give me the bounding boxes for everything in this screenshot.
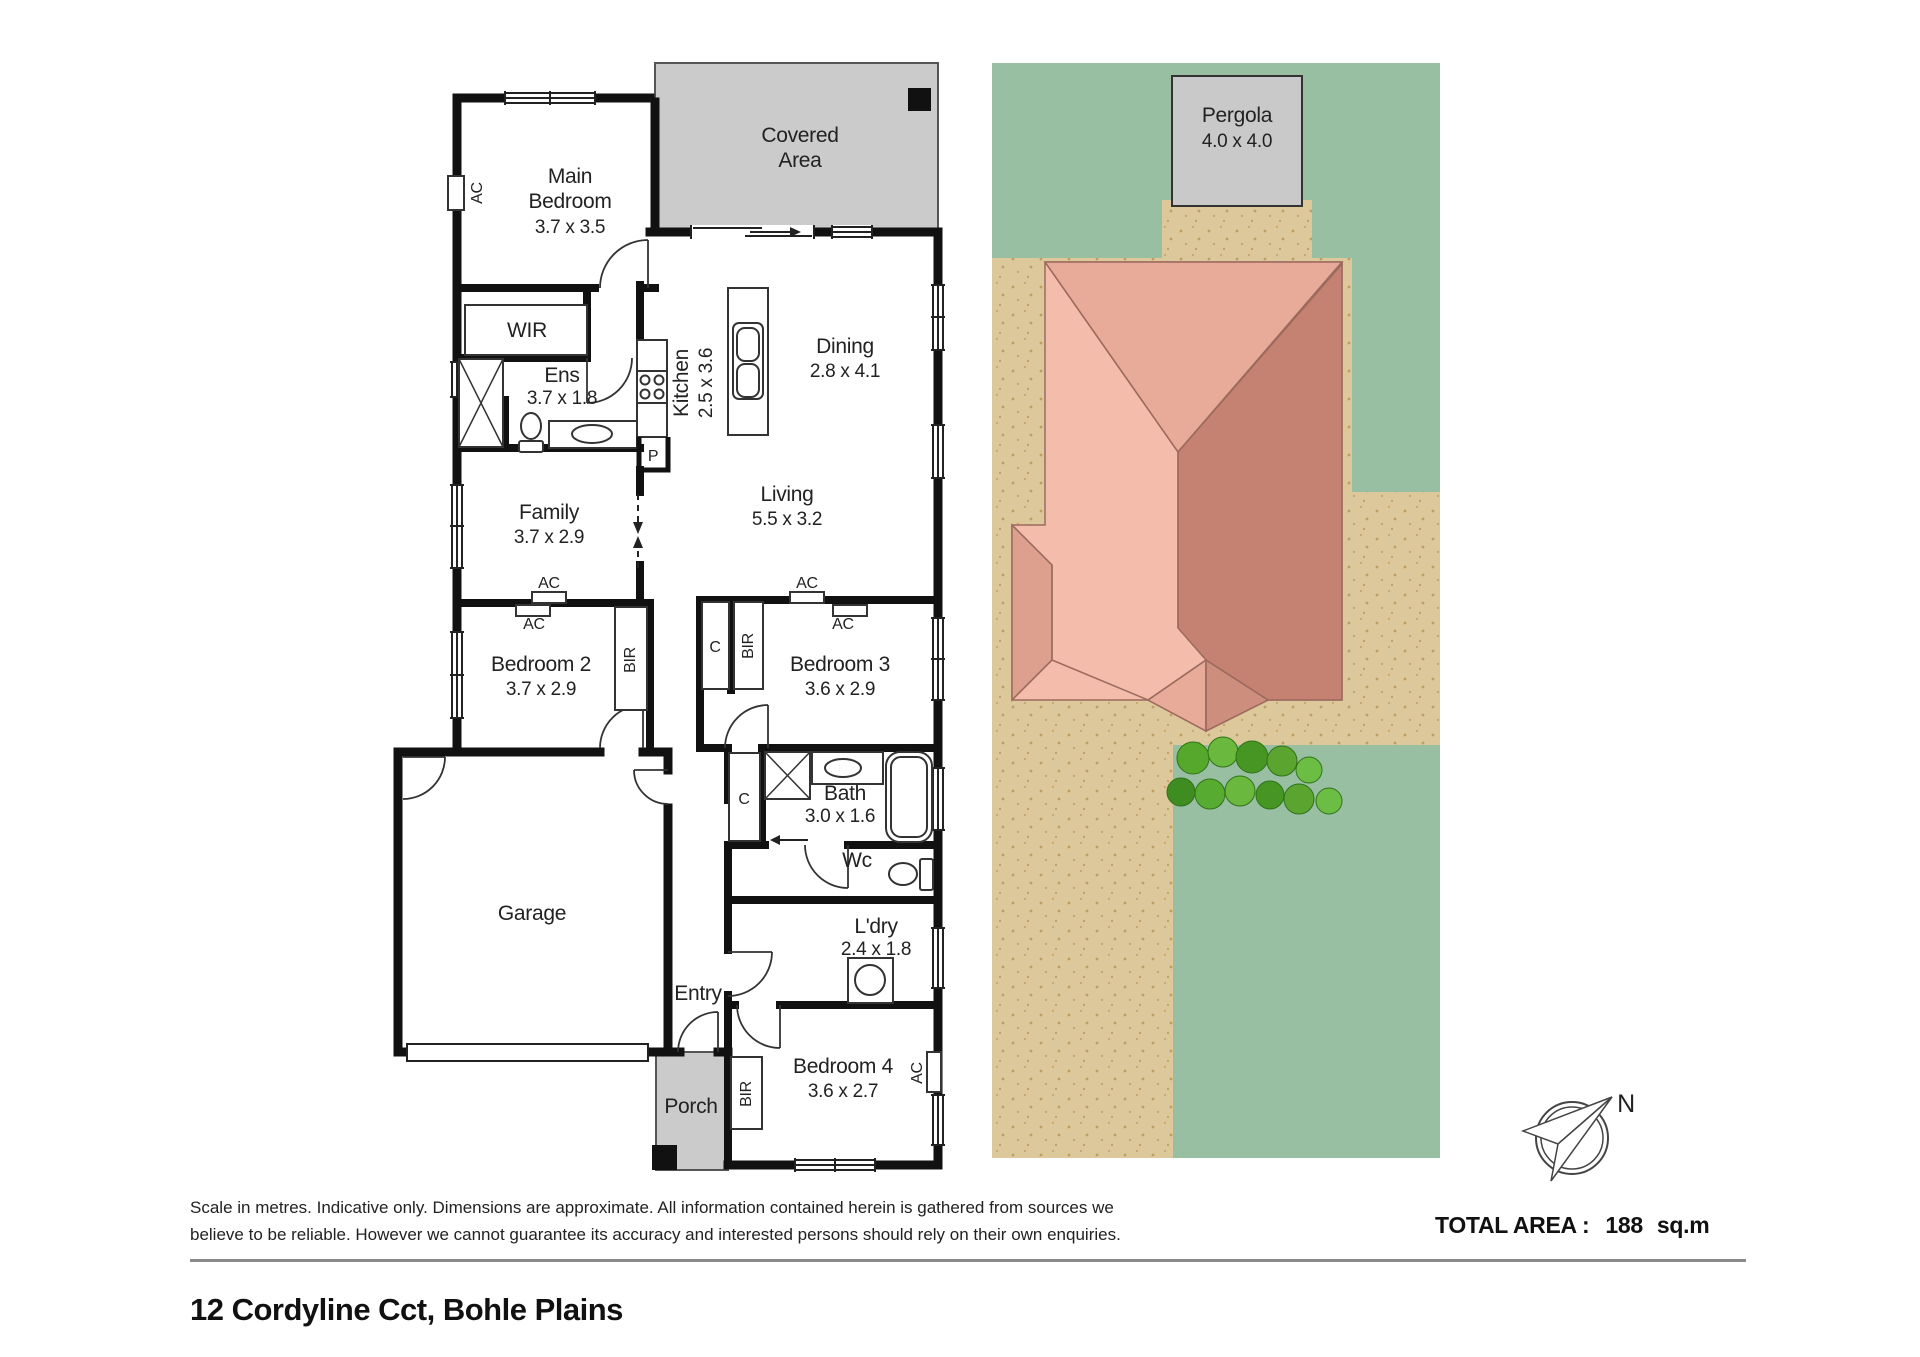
room-label-porch: Porch — [664, 1095, 717, 1118]
room-label-family: Family — [519, 501, 580, 524]
disclaimer-line2: believe to be reliable. However we canno… — [190, 1221, 1290, 1248]
room-label-main-bedroom-2: Bedroom — [528, 190, 611, 213]
covered-area-post — [908, 88, 931, 111]
total-area-value: 188 — [1605, 1212, 1642, 1238]
cupboard-label: C — [738, 791, 749, 808]
garage-door — [407, 1044, 648, 1061]
tree — [1296, 757, 1322, 783]
arrow-down — [633, 522, 643, 534]
ac-label: AC — [538, 575, 560, 592]
pantry-label: P — [648, 448, 658, 465]
laundry-tub — [848, 958, 893, 1003]
yard-right — [1352, 492, 1440, 745]
room-label-bedroom4: Bedroom 4 — [793, 1055, 894, 1078]
basin-bath — [825, 759, 861, 777]
toilet-tank-ensuite — [519, 441, 543, 452]
tree — [1236, 741, 1268, 773]
yard-bottom-left — [992, 745, 1173, 1158]
ac-label: AC — [469, 182, 486, 204]
floor-plan: Covered Area Main Bedroom 3.7 x 3.5 WIR … — [398, 63, 945, 1172]
bir-label: BIR — [738, 1081, 755, 1107]
room-dims-ens: 3.7 x 1.8 — [527, 388, 597, 409]
basin-ensuite — [572, 425, 612, 443]
door-entry-front — [678, 1012, 718, 1052]
tree — [1208, 737, 1238, 767]
ac-label: AC — [832, 616, 854, 633]
tree — [1256, 781, 1284, 809]
toilet-wc — [889, 863, 917, 885]
pergola-path — [1162, 200, 1312, 258]
window — [832, 225, 872, 239]
tree — [1195, 779, 1225, 809]
room-dims-laundry: 2.4 x 1.8 — [841, 939, 911, 960]
room-dims-bedroom3: 3.6 x 2.9 — [805, 679, 875, 700]
toilet-ensuite — [521, 413, 541, 439]
tree — [1167, 778, 1195, 806]
disclaimer: Scale in metres. Indicative only. Dimens… — [190, 1194, 1290, 1248]
room-dims-bedroom2: 3.7 x 2.9 — [506, 679, 576, 700]
window — [931, 425, 945, 478]
ac-unit-living — [790, 592, 824, 603]
sliding-door — [691, 225, 814, 239]
pergola: Pergola 4.0 x 4.0 — [1172, 76, 1302, 206]
room-dims-bath: 3.0 x 1.6 — [805, 806, 875, 827]
window — [795, 1158, 875, 1172]
room-label-covered-area-1: Covered — [761, 124, 838, 147]
ac-unit-family — [532, 592, 566, 603]
bathtub-inner — [891, 757, 927, 837]
island-sink — [733, 323, 763, 399]
ac-label: AC — [909, 1062, 926, 1084]
door-main-bedroom — [600, 240, 648, 288]
house-roof — [1012, 262, 1342, 731]
window — [931, 1095, 945, 1145]
toilet-tank-wc — [920, 859, 933, 890]
tree — [1225, 776, 1255, 806]
room-label-kitchen: Kitchen — [670, 349, 693, 417]
room-dims-dining: 2.8 x 4.1 — [810, 361, 880, 382]
pergola-dims: 4.0 x 4.0 — [1202, 131, 1272, 152]
ac-unit-bedroom4 — [927, 1052, 941, 1092]
room-dims-bedroom4: 3.6 x 2.7 — [808, 1081, 878, 1102]
room-label-bedroom2: Bedroom 2 — [491, 653, 591, 676]
door-garage-side — [403, 757, 445, 799]
total-area-unit: sq.m — [1657, 1212, 1709, 1238]
room-label-laundry: L'dry — [854, 915, 898, 938]
window — [931, 768, 945, 830]
footer-divider — [190, 1259, 1746, 1262]
ac-unit-bedroom3 — [833, 605, 867, 616]
arrow-up — [633, 536, 643, 548]
window — [931, 618, 945, 700]
total-area-label: TOTAL AREA : — [1435, 1212, 1589, 1238]
bir-label: BIR — [740, 633, 757, 659]
room-label-main-bedroom-1: Main — [548, 165, 592, 188]
tree — [1177, 742, 1209, 774]
room-label-bedroom3: Bedroom 3 — [790, 653, 890, 676]
total-area: TOTAL AREA :188sq.m — [1435, 1212, 1709, 1239]
window — [450, 485, 464, 568]
room-label-wc: Wc — [842, 849, 872, 872]
floorplan-page: Pergola 4.0 x 4.0 — [0, 0, 1920, 1357]
room-label-wir: WIR — [507, 319, 547, 342]
site-plan: Pergola 4.0 x 4.0 — [992, 63, 1440, 1158]
door-bedroom4 — [737, 1005, 780, 1048]
porch-post — [652, 1145, 677, 1170]
compass-north-label: N — [1617, 1090, 1635, 1118]
ac-unit-main-bedroom — [448, 176, 464, 210]
tree — [1267, 746, 1297, 776]
window — [450, 632, 464, 718]
room-label-bath: Bath — [824, 782, 866, 805]
property-address: 12 Cordyline Cct, Bohle Plains — [190, 1292, 623, 1328]
arrow-bath-exit — [770, 835, 780, 845]
cooktop — [637, 371, 667, 403]
room-dims-kitchen: 2.5 x 3.6 — [696, 348, 717, 418]
window — [505, 91, 595, 105]
windows — [407, 91, 945, 1172]
room-label-garage: Garage — [498, 902, 566, 925]
bir-label: BIR — [622, 647, 639, 673]
room-dims-family: 3.7 x 2.9 — [514, 527, 584, 548]
plan-graphic: Pergola 4.0 x 4.0 — [0, 0, 1920, 1357]
room-label-entry: Entry — [674, 982, 722, 1005]
shower-ensuite — [459, 359, 503, 447]
ac-label: AC — [523, 616, 545, 633]
tree — [1316, 788, 1342, 814]
room-dims-main-bedroom: 3.7 x 3.5 — [535, 217, 605, 238]
ac-unit-bedroom2 — [516, 605, 550, 616]
door-laundry — [728, 952, 772, 996]
room-dims-living: 5.5 x 3.2 — [752, 509, 822, 530]
door-garage-internal — [634, 770, 668, 804]
door-bedroom2 — [600, 705, 643, 748]
room-label-dining: Dining — [816, 335, 874, 358]
walls — [398, 98, 938, 1165]
door-bedroom3 — [725, 705, 768, 748]
window — [931, 928, 945, 988]
tree — [1284, 784, 1314, 814]
room-label-ens: Ens — [544, 364, 579, 387]
shower-bath — [765, 752, 810, 799]
ac-label: AC — [796, 575, 818, 592]
window — [931, 285, 945, 350]
covered-area-slab — [655, 63, 938, 232]
cupboard-label: C — [709, 639, 720, 656]
room-label-covered-area-2: Area — [778, 149, 822, 172]
room-label-living: Living — [760, 483, 813, 506]
compass: N — [1523, 1090, 1635, 1181]
disclaimer-line1: Scale in metres. Indicative only. Dimens… — [190, 1194, 1290, 1221]
lawn-right-column — [1352, 258, 1440, 492]
pergola-label: Pergola — [1202, 104, 1273, 127]
